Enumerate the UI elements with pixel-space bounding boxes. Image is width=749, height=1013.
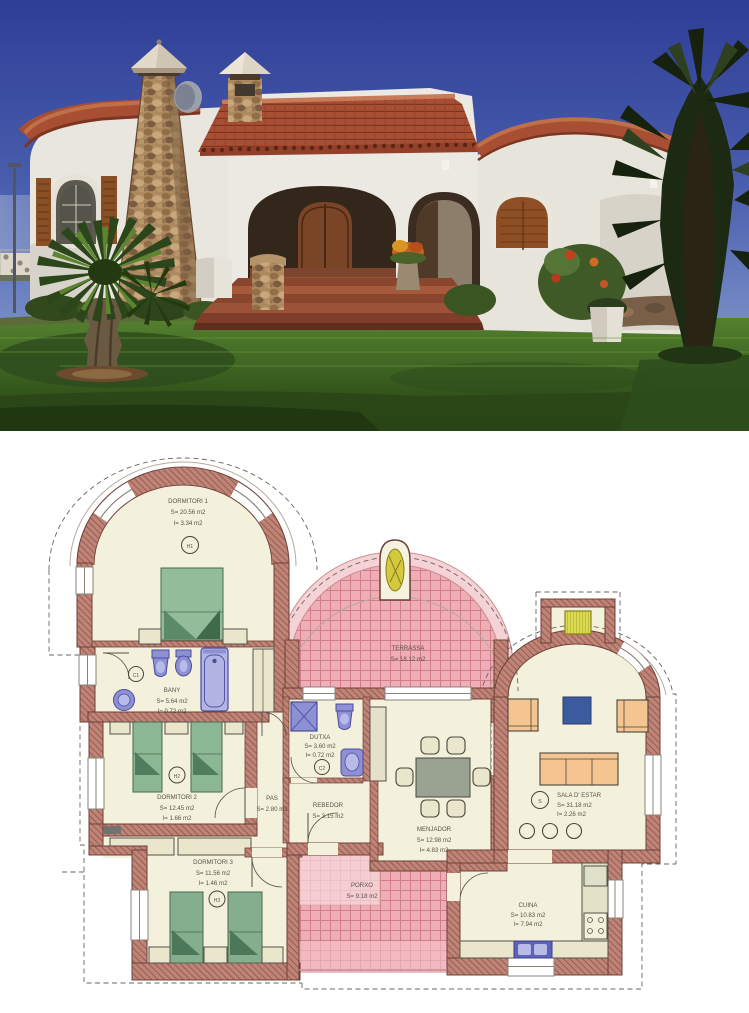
svg-text:C1: C1 [133, 673, 140, 679]
svg-text:S= 18.12 m2: S= 18.12 m2 [391, 656, 426, 663]
svg-text:I= 7.94 m2: I= 7.94 m2 [514, 921, 544, 928]
svg-text:PORXO: PORXO [351, 882, 373, 889]
svg-text:I= 1.46 m2: I= 1.46 m2 [199, 880, 229, 887]
svg-text:H3: H3 [214, 898, 221, 904]
svg-text:DORMITORI 3: DORMITORI 3 [193, 859, 233, 866]
svg-text:S= 3.15 m2: S= 3.15 m2 [312, 813, 344, 820]
svg-text:H1: H1 [187, 544, 194, 550]
svg-text:S= 3.60 m2: S= 3.60 m2 [304, 743, 336, 750]
svg-text:I= 0.72 m2: I= 0.72 m2 [306, 752, 336, 759]
svg-text:DORMITORI 2: DORMITORI 2 [157, 794, 197, 801]
svg-text:I= 4.83 m2: I= 4.83 m2 [420, 847, 450, 854]
svg-text:I= 2.26 m2: I= 2.26 m2 [557, 811, 587, 818]
svg-text:S= 20.56 m2: S= 20.56 m2 [171, 509, 206, 516]
svg-text:S= 31.18 m2: S= 31.18 m2 [557, 802, 592, 809]
svg-text:I= 1.66 m2: I= 1.66 m2 [163, 815, 193, 822]
svg-text:S= 12.98 m2: S= 12.98 m2 [417, 837, 452, 844]
svg-text:H2: H2 [174, 774, 181, 780]
svg-text:MENJADOR: MENJADOR [417, 826, 452, 833]
svg-text:C2: C2 [319, 766, 326, 772]
svg-text:DUTXA: DUTXA [310, 734, 332, 741]
svg-text:REBEDOR: REBEDOR [313, 802, 344, 809]
svg-text:S= 2.80 m2: S= 2.80 m2 [256, 806, 288, 813]
svg-text:S= 12.45 m2: S= 12.45 m2 [160, 805, 195, 812]
svg-text:BANY: BANY [164, 687, 181, 694]
svg-text:S: S [538, 799, 542, 805]
svg-text:SALA D' ESTAR: SALA D' ESTAR [557, 792, 602, 799]
svg-text:S= 5.64 m2: S= 5.64 m2 [156, 698, 188, 705]
svg-text:I= 3.34 m2: I= 3.34 m2 [174, 520, 204, 527]
svg-text:S= 11.56 m2: S= 11.56 m2 [196, 870, 231, 877]
svg-text:S= 9.18 m2: S= 9.18 m2 [346, 893, 378, 900]
svg-text:S= 10.83 m2: S= 10.83 m2 [511, 912, 546, 919]
svg-text:DORMITORI 1: DORMITORI 1 [168, 498, 208, 505]
svg-text:I= 0.72 m2: I= 0.72 m2 [158, 708, 188, 715]
svg-text:PAS: PAS [266, 795, 278, 802]
svg-text:CUINA: CUINA [519, 902, 539, 909]
svg-text:TERRASSA: TERRASSA [392, 645, 426, 652]
